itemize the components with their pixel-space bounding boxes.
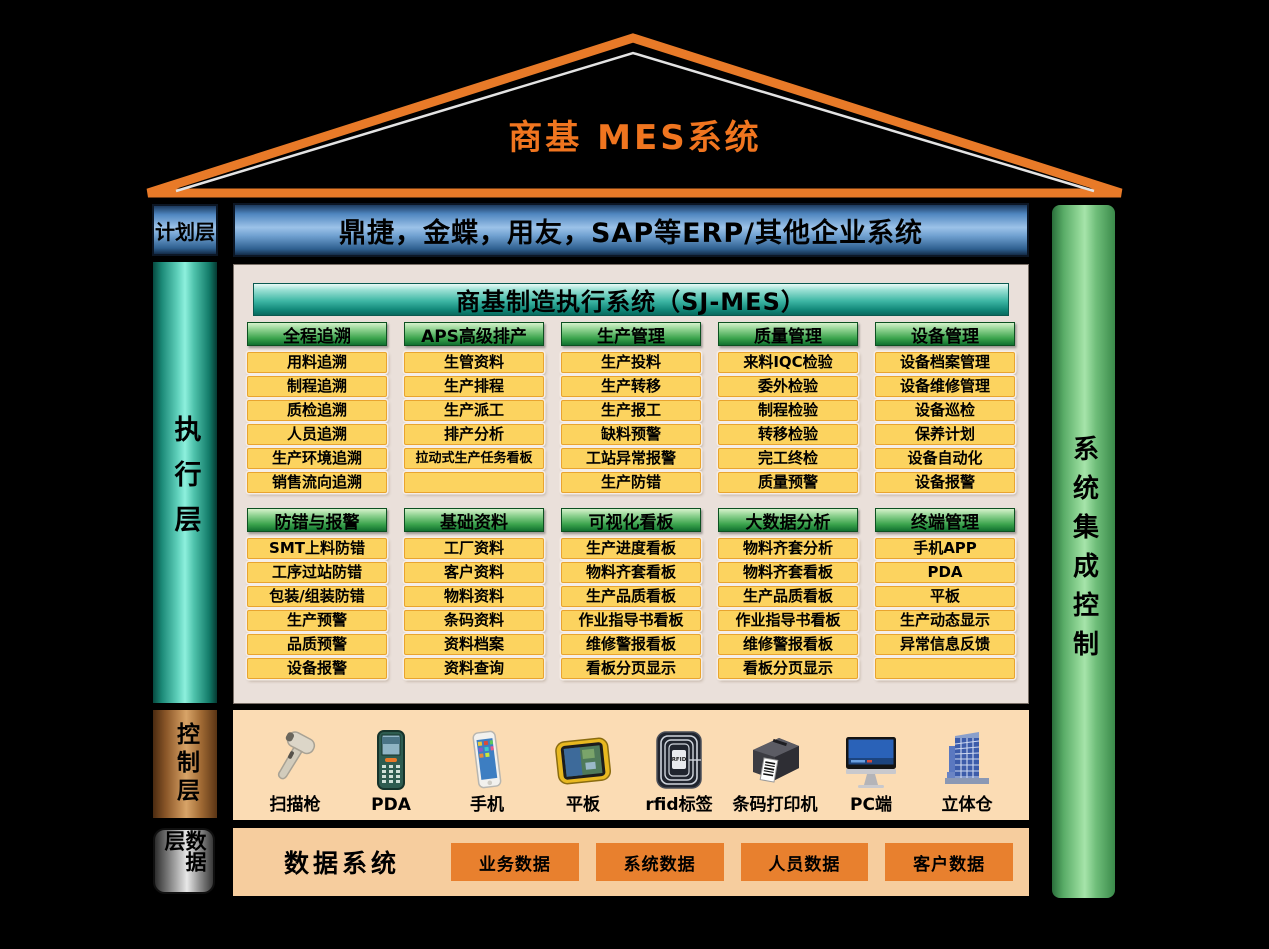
module-item[interactable]: 品质预警: [247, 634, 387, 655]
module-item[interactable]: 生产动态显示: [875, 610, 1015, 631]
module-item[interactable]: 作业指导书看板: [561, 610, 701, 631]
device-item: RFIDrfid标签: [631, 716, 727, 816]
erp-systems-label: 鼎捷，金蝶，用友，SAP等ERP/其他企业系统: [339, 211, 923, 250]
module-groups-grid: 全程追溯用料追溯制程追溯质检追溯人员追溯生产环境追溯销售流向追溯APS高级排产生…: [247, 322, 1015, 679]
pda-icon: [358, 726, 424, 794]
module-group-items: 用料追溯制程追溯质检追溯人员追溯生产环境追溯销售流向追溯: [247, 352, 387, 493]
module-group: 基础资料工厂资料客户资料物料资料条码资料资料档案资料查询: [404, 508, 544, 679]
module-group-items: 生产进度看板物料齐套看板生产品质看板作业指导书看板维修警报看板看板分页显示: [561, 538, 701, 679]
module-item[interactable]: 排产分析: [404, 424, 544, 445]
device-item: PDA: [343, 716, 439, 816]
module-item[interactable]: 看板分页显示: [718, 658, 858, 679]
module-item[interactable]: 生产防错: [561, 472, 701, 493]
device-item: 条码打印机: [727, 716, 823, 816]
device-label: PDA: [371, 794, 411, 816]
module-item[interactable]: 设备报警: [247, 658, 387, 679]
module-group-items: 手机APPPDA平板生产动态显示异常信息反馈: [875, 538, 1015, 679]
module-item[interactable]: 作业指导书看板: [718, 610, 858, 631]
module-item[interactable]: 用料追溯: [247, 352, 387, 373]
module-item[interactable]: 资料档案: [404, 634, 544, 655]
control-layer-label: 控制层: [174, 722, 197, 806]
module-item[interactable]: 物料齐套看板: [718, 562, 858, 583]
module-group-title: 终端管理: [875, 508, 1015, 532]
module-item[interactable]: 销售流向追溯: [247, 472, 387, 493]
module-item[interactable]: 拉动式生产任务看板: [404, 448, 544, 469]
module-item[interactable]: [404, 472, 544, 493]
module-item[interactable]: 维修警报看板: [561, 634, 701, 655]
module-group: 可视化看板生产进度看板物料齐套看板生产品质看板作业指导书看板维修警报看板看板分页…: [561, 508, 701, 679]
module-item[interactable]: 生产投料: [561, 352, 701, 373]
module-item[interactable]: 质检追溯: [247, 400, 387, 421]
module-group-items: 来料IQC检验委外检验制程检验转移检验完工终检质量预警: [718, 352, 858, 493]
device-label: 立体仓: [942, 794, 993, 816]
device-label: 手机: [470, 794, 504, 816]
device-label: PC端: [850, 794, 892, 816]
data-system-title: 数据系统: [233, 844, 451, 880]
data-layer-panel: 数据系统 业务数据系统数据人员数据客户数据: [233, 828, 1029, 896]
mes-architecture-diagram: 商基 MES系统 计划层 鼎捷，金蝶，用友，SAP等ERP/其他企业系统 系统集…: [0, 0, 1269, 949]
module-item[interactable]: [875, 658, 1015, 679]
module-item[interactable]: 异常信息反馈: [875, 634, 1015, 655]
module-group: 生产管理生产投料生产转移生产报工缺料预警工站异常报警生产防错: [561, 322, 701, 493]
control-layer-panel: 扫描枪PDA手机平板RFIDrfid标签条码打印机PC端立体仓: [233, 710, 1029, 820]
svg-text:RFID: RFID: [672, 757, 687, 763]
module-item[interactable]: SMT上料防错: [247, 538, 387, 559]
device-item: 立体仓: [919, 716, 1015, 816]
module-group-items: 生管资料生产排程生产派工排产分析拉动式生产任务看板: [404, 352, 544, 493]
module-group-title: 全程追溯: [247, 322, 387, 346]
module-item[interactable]: 完工终检: [718, 448, 858, 469]
module-item[interactable]: 生产品质看板: [561, 586, 701, 607]
module-group-items: 生产投料生产转移生产报工缺料预警工站异常报警生产防错: [561, 352, 701, 493]
module-group: 防错与报警SMT上料防错工序过站防错包装/组装防错生产预警品质预警设备报警: [247, 508, 387, 679]
database-box[interactable]: 系统数据: [596, 843, 724, 881]
device-item: PC端: [823, 716, 919, 816]
module-item[interactable]: 生产预警: [247, 610, 387, 631]
device-label: 扫描枪: [270, 794, 321, 816]
module-item[interactable]: 设备自动化: [875, 448, 1015, 469]
module-group-title: 质量管理: [718, 322, 858, 346]
module-item[interactable]: 保养计划: [875, 424, 1015, 445]
module-group-title: 防错与报警: [247, 508, 387, 532]
data-layer-tab: 数据层: [153, 828, 215, 894]
module-item[interactable]: 生产排程: [404, 376, 544, 397]
module-item[interactable]: 人员追溯: [247, 424, 387, 445]
scanner-gun-icon: [262, 726, 328, 794]
module-item[interactable]: 设备档案管理: [875, 352, 1015, 373]
planning-layer-tab: 计划层: [152, 204, 218, 256]
barcode-printer-icon: [742, 726, 808, 794]
module-item[interactable]: 生管资料: [404, 352, 544, 373]
module-group-items: 设备档案管理设备维修管理设备巡检保养计划设备自动化设备报警: [875, 352, 1015, 493]
module-group-title: 基础资料: [404, 508, 544, 532]
module-group-title: 大数据分析: [718, 508, 858, 532]
module-group: 质量管理来料IQC检验委外检验制程检验转移检验完工终检质量预警: [718, 322, 858, 493]
module-item[interactable]: 制程追溯: [247, 376, 387, 397]
device-label: 条码打印机: [733, 794, 818, 816]
module-item[interactable]: 物料齐套看板: [561, 562, 701, 583]
module-item[interactable]: 生产派工: [404, 400, 544, 421]
module-item[interactable]: 生产报工: [561, 400, 701, 421]
module-item[interactable]: 生产品质看板: [718, 586, 858, 607]
module-group-title: 生产管理: [561, 322, 701, 346]
module-group-items: 工厂资料客户资料物料资料条码资料资料档案资料查询: [404, 538, 544, 679]
device-label: rfid标签: [645, 794, 712, 816]
module-group-items: 物料齐套分析物料齐套看板生产品质看板作业指导书看板维修警报看板看板分页显示: [718, 538, 858, 679]
module-group-title: 可视化看板: [561, 508, 701, 532]
data-layer-label: 数据层: [163, 830, 205, 892]
module-item[interactable]: 物料齐套分析: [718, 538, 858, 559]
sjmes-header: 商基制造执行系统（SJ-MES）: [253, 283, 1009, 316]
module-group: 终端管理手机APPPDA平板生产动态显示异常信息反馈: [875, 508, 1015, 679]
module-item[interactable]: 缺料预警: [561, 424, 701, 445]
database-box[interactable]: 业务数据: [451, 843, 579, 881]
rfid-tag-icon: RFID: [646, 726, 712, 794]
execution-layer-tab: 执行层: [153, 262, 217, 703]
module-item[interactable]: 工厂资料: [404, 538, 544, 559]
system-integration-label: 系统集成控制: [1071, 435, 1097, 669]
warehouse-icon: [934, 726, 1000, 794]
system-integration-bar: 系统集成控制: [1052, 205, 1115, 898]
module-group-title: 设备管理: [875, 322, 1015, 346]
module-item[interactable]: 设备维修管理: [875, 376, 1015, 397]
module-item[interactable]: 来料IQC检验: [718, 352, 858, 373]
device-item: 平板: [535, 716, 631, 816]
diagram-title: 商基 MES系统: [390, 110, 880, 159]
module-item[interactable]: 转移检验: [718, 424, 858, 445]
module-item[interactable]: 设备报警: [875, 472, 1015, 493]
module-item[interactable]: 看板分页显示: [561, 658, 701, 679]
module-item[interactable]: 生产进度看板: [561, 538, 701, 559]
module-item[interactable]: PDA: [875, 562, 1015, 583]
module-item[interactable]: 委外检验: [718, 376, 858, 397]
execution-layer-label: 执行层: [172, 415, 199, 550]
module-group: 设备管理设备档案管理设备维修管理设备巡检保养计划设备自动化设备报警: [875, 322, 1015, 493]
module-item[interactable]: 制程检验: [718, 400, 858, 421]
module-item[interactable]: 资料查询: [404, 658, 544, 679]
phone-icon: [454, 726, 520, 794]
module-item[interactable]: 包装/组装防错: [247, 586, 387, 607]
pc-icon: [838, 726, 904, 794]
module-item[interactable]: 平板: [875, 586, 1015, 607]
module-item[interactable]: 条码资料: [404, 610, 544, 631]
module-item[interactable]: 质量预警: [718, 472, 858, 493]
database-box[interactable]: 客户数据: [885, 843, 1013, 881]
module-item[interactable]: 工序过站防错: [247, 562, 387, 583]
device-item: 扫描枪: [247, 716, 343, 816]
module-item[interactable]: 物料资料: [404, 586, 544, 607]
module-item[interactable]: 客户资料: [404, 562, 544, 583]
erp-systems-bar: 鼎捷，金蝶，用友，SAP等ERP/其他企业系统: [233, 203, 1029, 257]
module-item[interactable]: 生产环境追溯: [247, 448, 387, 469]
database-box[interactable]: 人员数据: [741, 843, 869, 881]
module-item[interactable]: 设备巡检: [875, 400, 1015, 421]
module-item[interactable]: 生产转移: [561, 376, 701, 397]
device-label: 平板: [566, 794, 600, 816]
module-group: 大数据分析物料齐套分析物料齐套看板生产品质看板作业指导书看板维修警报看板看板分页…: [718, 508, 858, 679]
module-item[interactable]: 手机APP: [875, 538, 1015, 559]
tablet-icon: [550, 726, 616, 794]
database-boxes: 业务数据系统数据人员数据客户数据: [451, 843, 1013, 881]
module-group-title: APS高级排产: [404, 322, 544, 346]
control-layer-tab: 控制层: [153, 710, 217, 818]
module-group: APS高级排产生管资料生产排程生产派工排产分析拉动式生产任务看板: [404, 322, 544, 493]
planning-layer-label: 计划层: [155, 216, 215, 245]
module-item[interactable]: 维修警报看板: [718, 634, 858, 655]
sjmes-header-label: 商基制造执行系统（SJ-MES）: [456, 282, 806, 317]
module-group-items: SMT上料防错工序过站防错包装/组装防错生产预警品质预警设备报警: [247, 538, 387, 679]
execution-layer-panel: 商基制造执行系统（SJ-MES） 全程追溯用料追溯制程追溯质检追溯人员追溯生产环…: [233, 264, 1029, 704]
module-group: 全程追溯用料追溯制程追溯质检追溯人员追溯生产环境追溯销售流向追溯: [247, 322, 387, 493]
device-item: 手机: [439, 716, 535, 816]
module-item[interactable]: 工站异常报警: [561, 448, 701, 469]
